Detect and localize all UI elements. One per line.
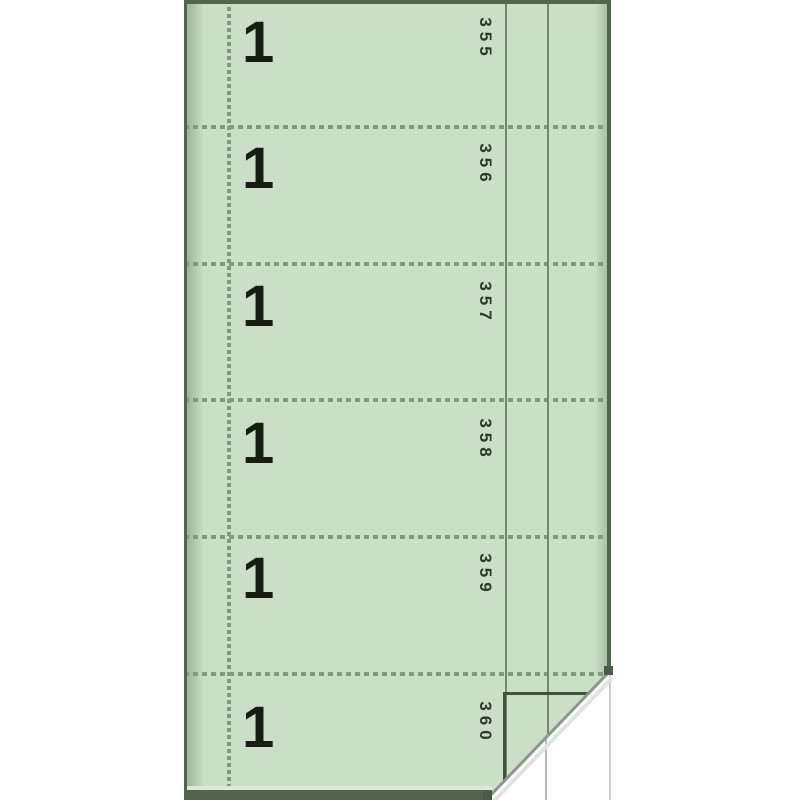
photo-left-edge [184,0,187,800]
stub-serial-number: 360 [477,698,493,748]
photo-right-edge [607,0,611,674]
form-section: 1 355 [184,0,611,125]
form-number: 1 [242,550,274,608]
product-photo: { "colors": { "background": "#ffffff", "… [0,0,800,800]
form-number: 1 [242,415,274,473]
form-number: 1 [242,278,274,336]
form-section: 1 358 [184,398,611,535]
photo-bottom-edge [184,790,492,800]
stub-serial-number: 359 [477,550,493,600]
corner-box-line-vertical [503,692,506,786]
form-book-page: 1 355 1 356 1 357 1 358 1 359 1 360 [184,0,611,800]
stub-serial-number: 358 [477,415,493,465]
form-section: 1 356 [184,125,611,262]
photo-top-edge [184,0,611,4]
underlying-page-edge [609,674,611,800]
underlying-page-rule [545,737,547,800]
form-section: 1 357 [184,262,611,398]
stub-serial-number: 357 [477,278,493,328]
form-number: 1 [242,140,274,198]
form-section: 1 359 [184,535,611,672]
corner-box-line-horizontal [503,692,595,695]
form-number: 1 [242,699,274,757]
stub-serial-number: 355 [477,14,493,64]
form-number: 1 [242,14,274,72]
stub-serial-number: 356 [477,140,493,190]
